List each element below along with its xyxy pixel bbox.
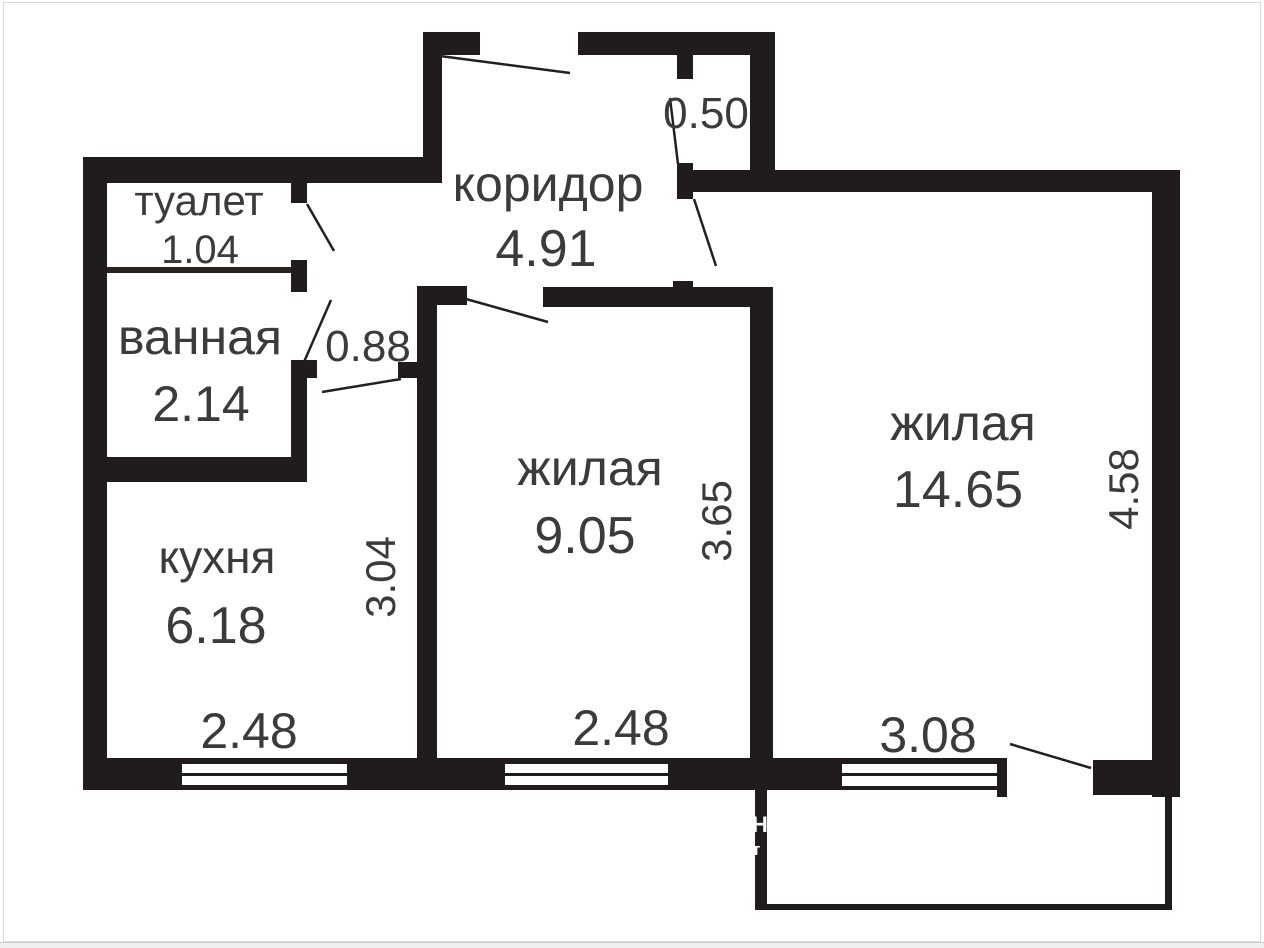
window-frame-line [842,773,997,776]
watermark-fragment: т [755,840,760,860]
wall-bath-right [291,376,307,457]
room2-window [842,761,997,789]
wall-balcony-door-post [997,758,1007,797]
room1-window [505,761,668,788]
floor-plan: Н т туалет 1.04 ванная 2.14 коридор 4.91… [0,0,1264,948]
kitchen-window [182,761,347,788]
dim-room1-width: 2.48 [572,703,669,753]
bathroom-area: 2.14 [152,379,249,429]
corridor-label: коридор [453,159,644,209]
wall-niche-stub-bottom [677,163,693,199]
wall-room1-room2-divider [750,287,773,758]
toilet-label: туалет [134,180,263,222]
dim-passage: 0.88 [325,325,411,369]
room2-label: жилая [890,398,1035,448]
wall-room2-top [693,170,1180,192]
room2-area: 14.65 [893,464,1023,516]
room1-area: 9.05 [534,510,635,562]
wall-right-outer [1152,170,1180,797]
balcony-left-wall: Н т [755,790,767,910]
dim-kitchen-depth: 3.04 [360,536,402,618]
page-bottom-band [0,942,1264,948]
balcony-bottom-line [755,904,1172,910]
window-frame-line [505,773,668,776]
wall-toilet-door-stub [291,173,307,203]
kitchen-door-swing [322,379,401,392]
wall-niche-stub-top [677,55,693,79]
entry-door-swing [440,56,570,73]
balcony-door-swing [1010,744,1091,768]
bathroom-label: ванная [118,312,282,362]
wall-balcony-block [1093,760,1152,795]
wall-entry-stub [423,32,480,55]
toilet-door-swing [307,204,334,251]
room1-door-swing [466,299,548,322]
kitchen-label: кухня [159,534,276,580]
window-frame-line [182,773,347,776]
dim-room1-depth: 3.65 [696,480,738,562]
dim-room2-width: 3.08 [879,710,976,760]
wall-toilet-bath-block [291,260,307,292]
wall-room1-corner [417,286,467,305]
balcony-right-line [1165,795,1172,910]
wall-room1-left [417,286,437,758]
wall-top-center [578,32,775,55]
corridor-area: 4.91 [495,223,596,275]
room2-door-swing [694,199,716,266]
wall-bath-bottom [83,457,307,482]
wall-corridor-right [750,32,775,178]
room1-label: жилая [517,443,662,493]
wall-dimension-nub [673,281,693,288]
dim-room2-depth: 4.58 [1103,448,1145,530]
watermark-fragment: Н [755,812,767,838]
dim-niche: 0.50 [663,92,749,136]
dim-kitchen-width: 2.48 [200,706,297,756]
toilet-area: 1.04 [161,230,239,270]
wall-corridor-bottom [543,287,773,307]
kitchen-area: 6.18 [165,600,266,652]
